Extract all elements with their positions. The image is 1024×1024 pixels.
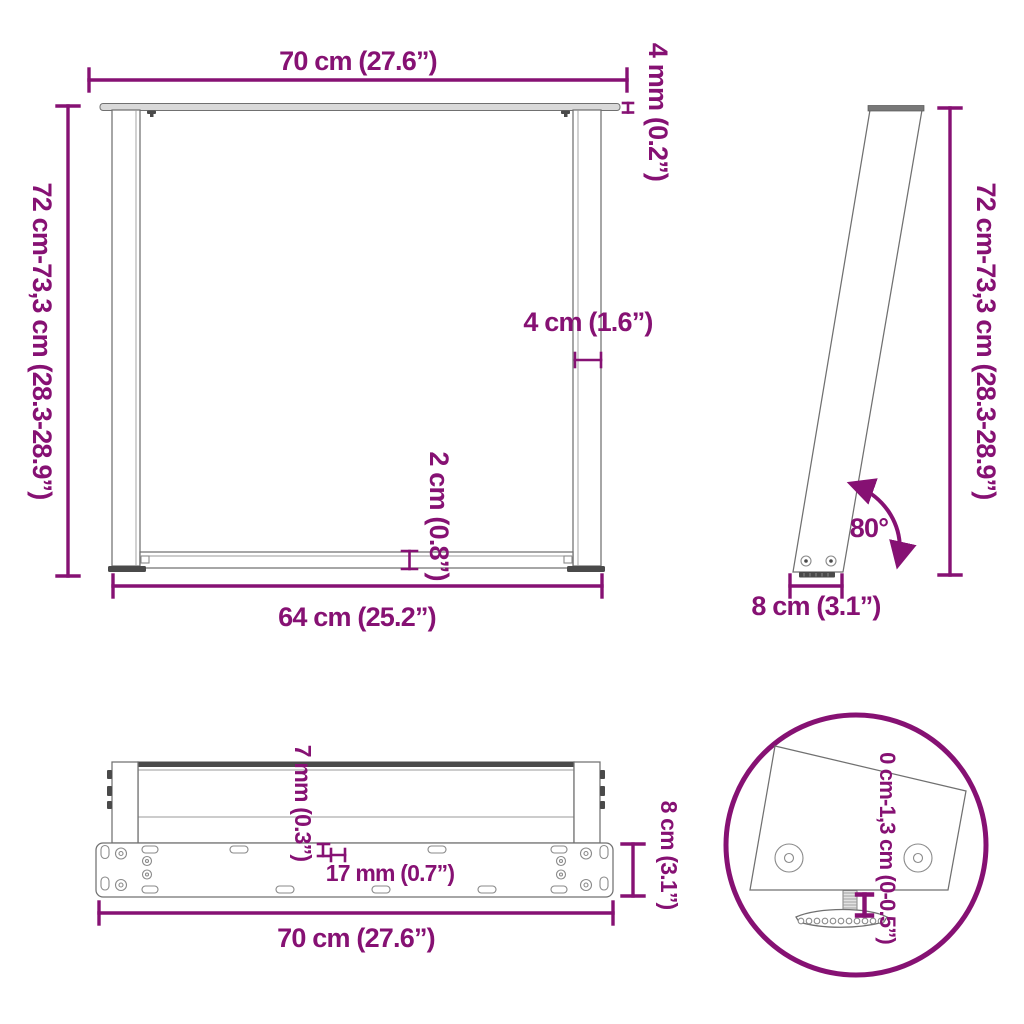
front-left-foot	[108, 566, 146, 572]
bottom-right-leg-post	[574, 762, 600, 843]
side-view: 80° 8 cm (3.1”) 72 cm-73,3 cm (28.3-28.9…	[751, 106, 1001, 622]
side-foot-screw-right	[826, 556, 836, 566]
front-crossbar-clip-right	[564, 556, 572, 563]
front-right-leg	[573, 110, 601, 566]
dim-bottom-plate-depth: 8 cm (3.1”)	[622, 801, 682, 910]
bottom-right-leg-clips	[600, 770, 605, 809]
side-foot-screw-left	[801, 556, 811, 566]
bottom-crossbar-body	[138, 762, 574, 843]
dim-label-front-crossbar-height: 2 cm (0.8”)	[424, 451, 454, 580]
dim-label-front-leg-width: 4 cm (1.6”)	[523, 307, 652, 337]
front-plate-screw-left	[147, 111, 156, 118]
dim-label-front-height: 72 cm-73,3 cm (28.3-28.9”)	[27, 183, 57, 500]
dim-label-side-angle: 80°	[850, 513, 888, 543]
detail-screw-left	[775, 844, 803, 872]
dim-side-height: 72 cm-73,3 cm (28.3-28.9”)	[939, 108, 1001, 575]
dim-label-bottom-total-width: 70 cm (27.6”)	[277, 923, 435, 953]
side-foot	[799, 572, 835, 578]
front-top-plate	[100, 104, 620, 111]
dim-label-front-top-width: 70 cm (27.6”)	[279, 46, 437, 76]
detail-screw-right	[904, 844, 932, 872]
dim-side-foot-depth: 8 cm (3.1”)	[751, 575, 880, 621]
dim-label-bottom-slot-length: 17 mm (0.7”)	[326, 860, 455, 886]
dim-label-front-bottom-width: 64 cm (25.2”)	[278, 602, 436, 632]
dim-label-detail-adjustment: 0 cm-1,3 cm (0-0.5”)	[875, 752, 900, 944]
dim-label-bottom-hole-width: 7 mm (0.3”)	[290, 745, 316, 862]
dim-label-bottom-plate-depth: 8 cm (3.1”)	[656, 801, 682, 910]
dim-label-side-foot-depth: 8 cm (3.1”)	[751, 591, 880, 621]
dim-front-bottom-width: 64 cm (25.2”)	[113, 575, 602, 632]
dim-bottom-total-width: 70 cm (27.6”)	[99, 902, 613, 953]
front-plate-screw-right	[561, 111, 570, 118]
dim-front-top-width: 70 cm (27.6”)	[89, 46, 627, 91]
dim-front-height: 72 cm-73,3 cm (28.3-28.9”)	[27, 106, 79, 576]
bottom-left-leg-post	[112, 762, 138, 843]
dim-side-angle: 80°	[850, 484, 900, 564]
bottom-crossbar-edge	[138, 762, 574, 767]
dim-label-front-plate-thickness: 4 mm (0.2”)	[643, 43, 673, 181]
side-leg	[793, 110, 922, 572]
dim-label-side-height: 72 cm-73,3 cm (28.3-28.9”)	[971, 183, 1001, 500]
table-leg-dimension-diagram: 70 cm (27.6”) 4 mm (0.2”) 72 cm-73,3 cm …	[0, 0, 1024, 1024]
side-top-plate-edge	[868, 106, 924, 112]
detail-foot-disc	[796, 910, 887, 928]
dim-front-plate-thickness: 4 mm (0.2”)	[623, 43, 673, 181]
front-crossbar	[140, 552, 573, 568]
dim-front-crossbar-height: 2 cm (0.8”)	[402, 451, 454, 580]
bottom-view: 7 mm (0.3”) 17 mm (0.7”) 8 cm (3.1”) 70 …	[96, 745, 682, 953]
front-right-foot	[567, 566, 605, 572]
front-crossbar-clip-left	[141, 556, 149, 563]
bottom-left-leg-clips	[107, 770, 112, 809]
front-view: 70 cm (27.6”) 4 mm (0.2”) 72 cm-73,3 cm …	[27, 43, 673, 632]
detail-view: 0 cm-1,3 cm (0-0.5”)	[726, 715, 986, 975]
